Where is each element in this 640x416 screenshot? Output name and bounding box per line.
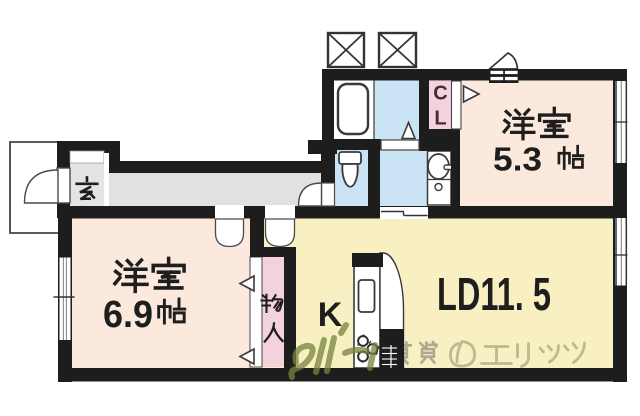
svg-text:K: K [318, 296, 343, 334]
svg-text:6.9: 6.9 [103, 294, 153, 336]
svg-text:C: C [433, 83, 447, 105]
svg-text:5.3: 5.3 [493, 141, 542, 178]
svg-text:LD11. 5: LD11. 5 [437, 268, 551, 320]
svg-text:L: L [434, 108, 446, 130]
